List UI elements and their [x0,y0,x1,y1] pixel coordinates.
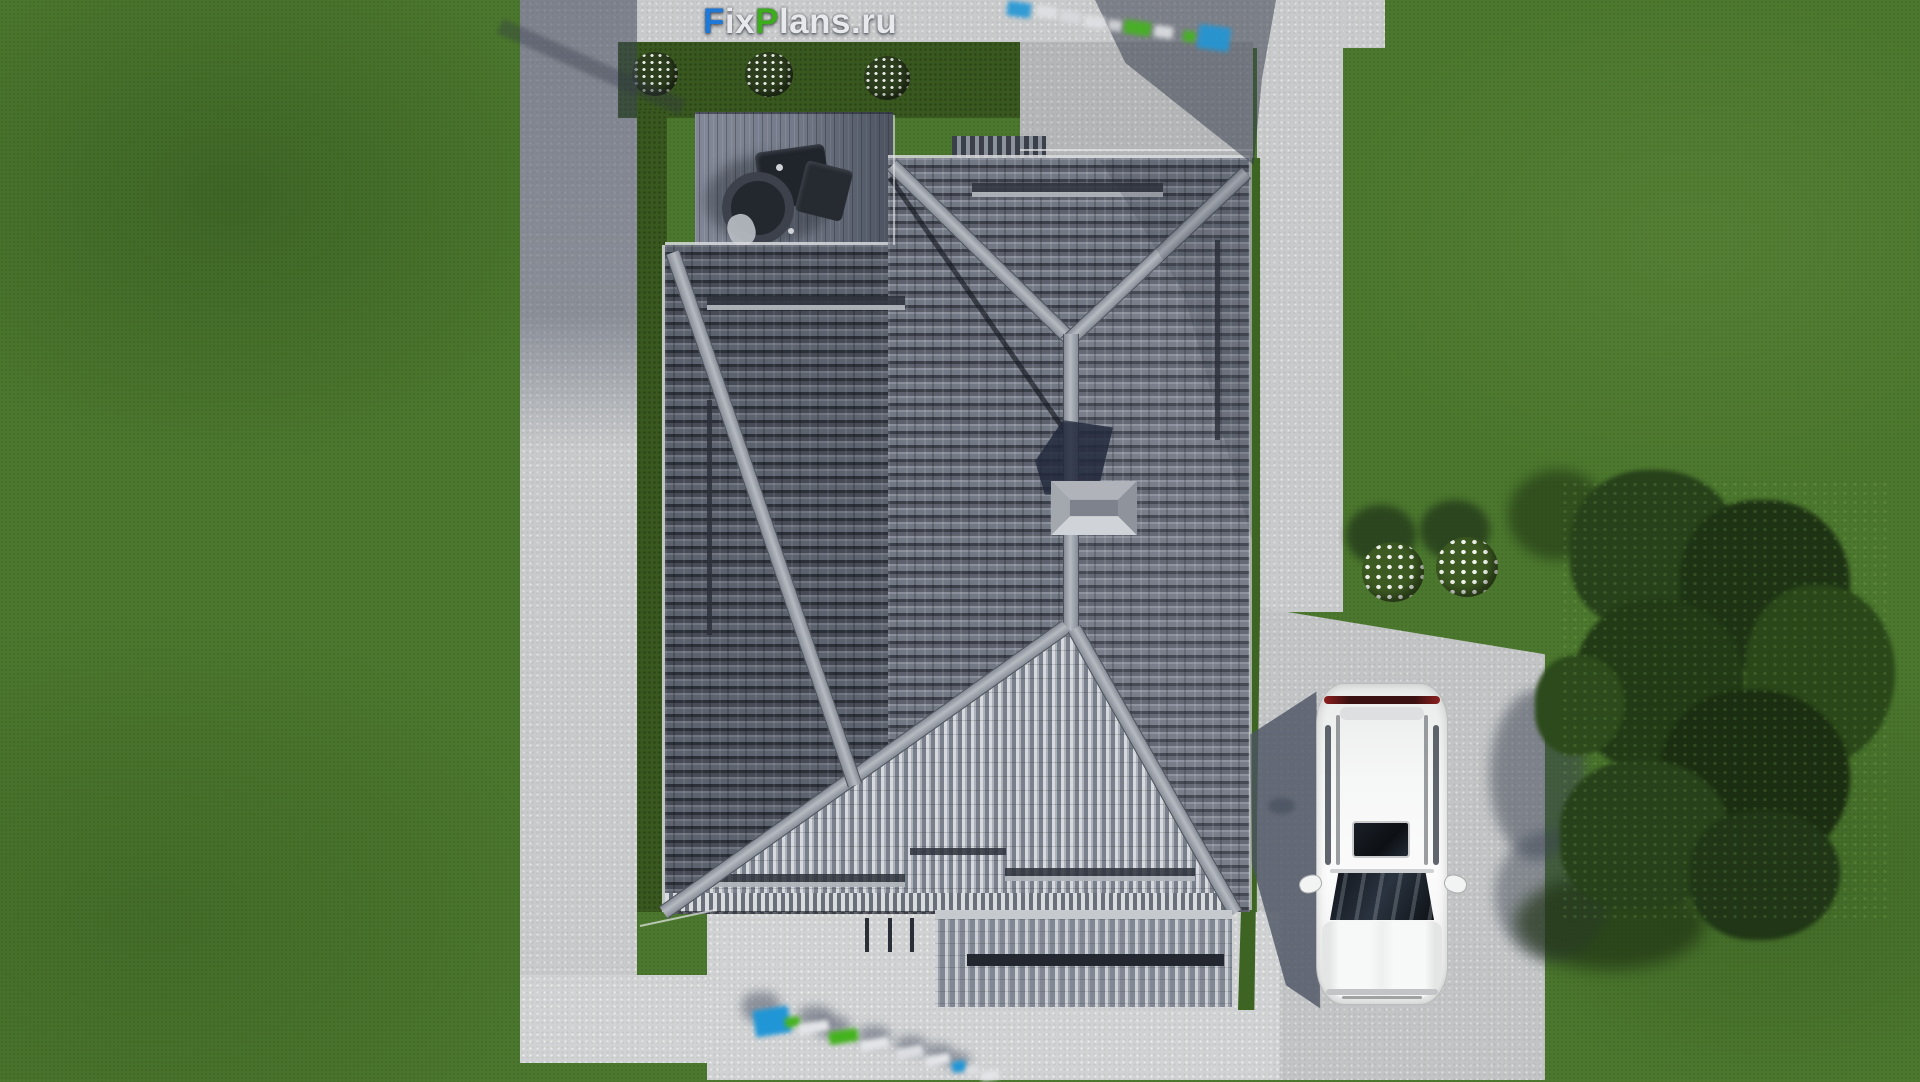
porch-post [888,918,892,952]
flowering-bush [745,52,793,97]
chimney [1051,481,1137,535]
drip-edge-left [662,245,665,912]
cushion-highlight [776,164,783,171]
fence-line [893,115,895,245]
flowering-bush [1436,537,1498,597]
flowering-bush [864,56,910,100]
car-grille-line [1342,996,1422,999]
snow-guard [910,848,1006,855]
brand-logo-segment-p: P [755,2,779,41]
porch-gutter-bar [967,954,1224,966]
watermark-block [1006,0,1032,18]
watermark-block [1196,24,1231,52]
drip-edge-top-west [665,242,888,245]
car [1316,683,1448,1005]
car-side-window [1325,725,1331,865]
brand-logo-segment-ix: ix [725,2,755,41]
brand-logo: FixPlans.ru [703,2,897,42]
snow-guard [715,882,905,887]
car-mirror-shadow [1268,798,1295,814]
car-side-window [1433,725,1439,865]
porch-fascia [935,910,1232,919]
car-rear-window [1340,707,1424,720]
snow-guard-vertical [707,400,712,635]
cushion-highlight [788,228,794,234]
car-cowl-line [1330,869,1434,873]
watermark-block [1182,30,1196,43]
snow-guard [707,296,905,305]
porch-post [865,918,869,952]
car-hood [1322,921,1442,997]
lawn: { "watermark_logo": { "segments": [ {"te… [0,0,1920,1080]
car-windshield [1330,873,1434,920]
watermark-block [1107,19,1122,32]
car-roof-rail [1336,715,1340,865]
fence-line [1020,149,1253,151]
snow-guard [1005,876,1195,881]
car-roof-rail [1424,715,1428,865]
flowering-bush [1362,542,1424,602]
tree-canopy [1690,810,1840,940]
car-sunroof [1352,821,1410,858]
car-front-edge [1326,989,1438,995]
car-taillight-bar [1324,696,1440,704]
drip-edge-top-east [888,155,1250,158]
snow-guard [707,305,905,310]
snow-guard [715,874,905,882]
watermark-block [1153,25,1173,40]
brand-logo-segment-f: F [703,2,725,41]
porch-post [910,918,914,952]
brand-logo-segment-rest: lans.ru [779,2,897,41]
snow-guard [1005,868,1195,876]
walkway-bottom [520,975,712,1063]
walkway-right [1257,0,1343,612]
